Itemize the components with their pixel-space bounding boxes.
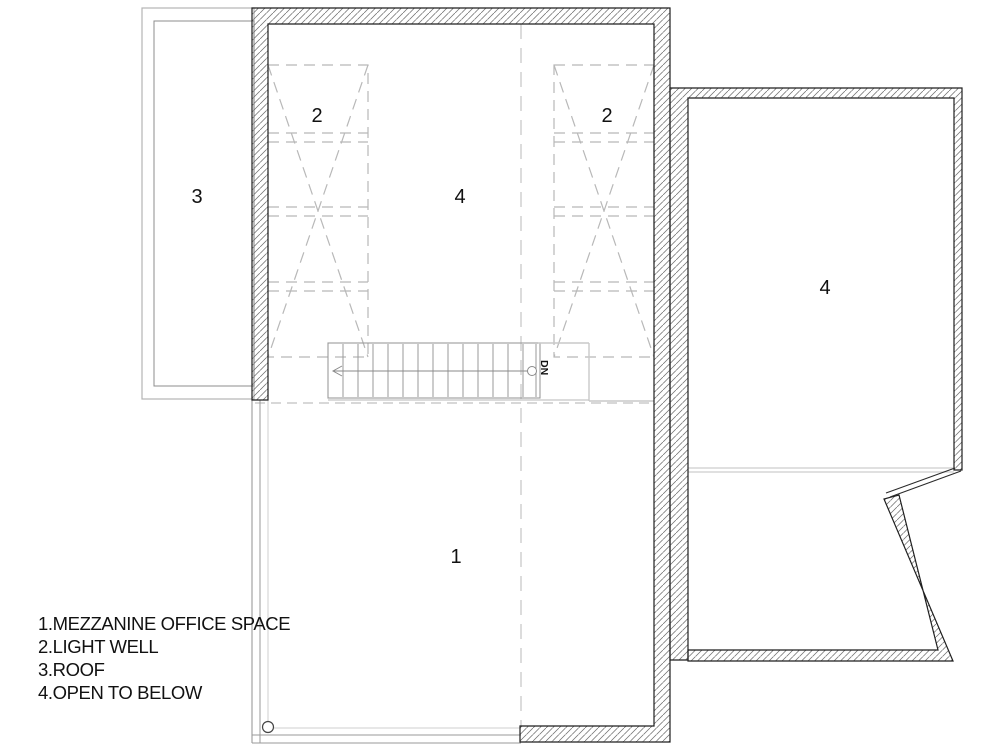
room-label-open-right: 4 — [819, 277, 830, 299]
right-building-angled-wall — [688, 495, 953, 661]
stair: DN — [328, 343, 654, 401]
legend-item: 1.MEZZANINE OFFICE SPACE — [38, 613, 290, 634]
legend-item: 3.ROOF — [38, 659, 105, 680]
column-marker-circle — [263, 722, 274, 733]
notch-jog-line-outer — [890, 471, 961, 497]
legend-item: 4.OPEN TO BELOW — [38, 682, 203, 703]
room-label-light-well-right: 2 — [601, 105, 612, 127]
roof-inner-outline — [154, 21, 254, 386]
room-label-open-center: 4 — [454, 186, 465, 208]
stair-start-circle — [528, 367, 537, 376]
stair-dn-label: DN — [538, 360, 550, 375]
floor-plan-page: DN 3 2 2 4 4 1 1.MEZZANINE OFFICE SPACE … — [0, 0, 1000, 750]
stair-direction: DN — [333, 360, 550, 376]
legend-item: 2.LIGHT WELL — [38, 636, 158, 657]
room-label-light-well-left: 2 — [311, 105, 322, 127]
stair-landing-lines — [538, 343, 654, 401]
room-label-mezzanine: 1 — [450, 546, 461, 568]
mezzanine-glazing — [252, 400, 521, 743]
room-label-roof: 3 — [191, 186, 202, 208]
right-building-divider — [688, 468, 954, 472]
floor-plan-canvas: DN 3 2 2 4 4 1 1.MEZZANINE OFFICE SPACE … — [0, 0, 1000, 750]
